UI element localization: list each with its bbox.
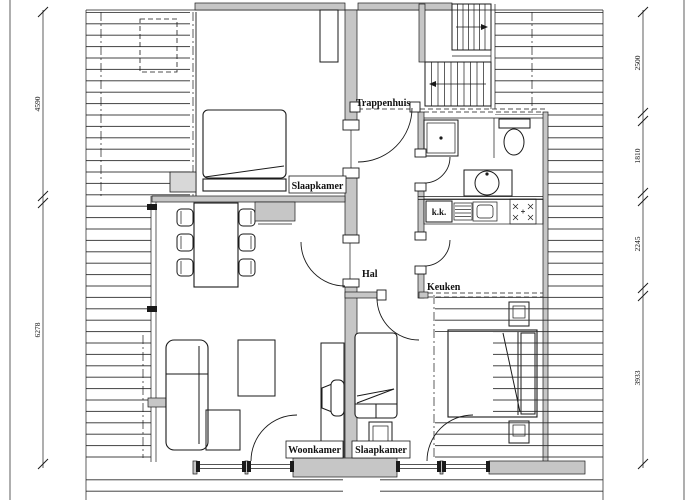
room-label-keuken: Keuken: [427, 282, 461, 293]
window-post: [147, 306, 157, 312]
dim-right-2500: 2500: [633, 55, 642, 70]
woonkamer-north-wall: [152, 196, 345, 202]
dim-left-4590: 4590: [33, 96, 42, 111]
top-wall-bedroom: [195, 3, 345, 10]
dim-right-3933: 3933: [633, 370, 642, 385]
floor-plan-drawing: Trappenhuis Slaapkamer Hal Keuken k.k. W…: [0, 0, 700, 500]
roof-hatch-bottom-right-strip: [380, 478, 603, 500]
toilet-icon: [504, 129, 524, 155]
bottom-right-pier: [489, 461, 585, 474]
label-koelkast: k.k.: [432, 207, 447, 217]
room-label-woonkamer: Woonkamer: [288, 445, 341, 456]
dim-right-2245: 2245: [633, 236, 642, 251]
bed-footboard: [203, 179, 286, 191]
window-post: [147, 204, 157, 210]
room-label-slaapkamer-bottom: Slaapkamer: [355, 445, 407, 456]
top-wall-stairhall: [358, 3, 452, 10]
chimney-breast: [255, 202, 295, 221]
nightstand: [170, 172, 196, 192]
room-label-hal: Hal: [362, 269, 378, 280]
dim-left-6278: 6278: [33, 322, 42, 337]
sofa: [166, 340, 208, 450]
roof-hatch-bottom-left-strip: [86, 478, 343, 500]
shower-drain: [439, 136, 442, 139]
closet: [320, 10, 338, 62]
room-label-slaapkamer-top: Slaapkamer: [292, 181, 344, 192]
bottom-center-pier: [293, 458, 397, 477]
room-label-trappenhuis: Trappenhuis: [356, 98, 410, 109]
dim-right-1810: 1810: [633, 148, 642, 163]
dining-table: [194, 203, 238, 287]
washbasin-tap: [485, 172, 488, 175]
toilet-cistern: [499, 119, 530, 128]
floor-plan-svg: Trappenhuis Slaapkamer Hal Keuken k.k. W…: [0, 0, 700, 500]
